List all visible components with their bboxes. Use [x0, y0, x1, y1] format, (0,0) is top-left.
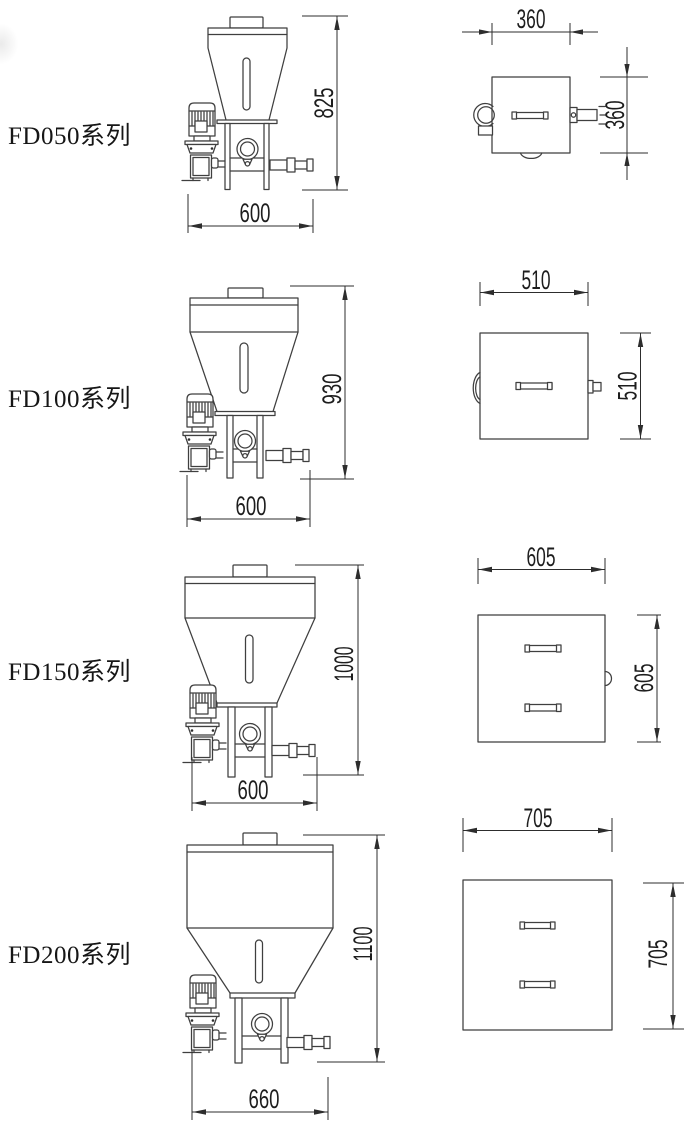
- technical-drawings: 825 600: [0, 0, 700, 1131]
- lid-slot-lower: [520, 981, 555, 988]
- drive-motor: [182, 103, 225, 181]
- discharge-tube: [270, 158, 313, 172]
- width-dimension-600: 600: [192, 757, 317, 811]
- width-value: 600: [236, 491, 267, 521]
- width-value: 600: [240, 198, 271, 228]
- height-dimension-1100: 1100: [303, 835, 385, 1062]
- lid-slot-lower: [525, 704, 561, 712]
- outlet-port: [252, 1014, 273, 1042]
- fd100-top-view: 510 510: [473, 265, 651, 439]
- right-leg: [281, 998, 288, 1063]
- fd050-front-view: 825 600: [182, 16, 348, 233]
- outlet-port: [240, 724, 261, 752]
- left-leg: [228, 707, 235, 777]
- width-dimension-600: 600: [187, 470, 310, 527]
- left-leg: [225, 124, 230, 190]
- lid-slot-upper: [520, 922, 555, 929]
- height-value: 1000: [329, 647, 359, 682]
- top-depth-dimension-605: 605: [629, 615, 661, 742]
- discharge-tube: [287, 1036, 330, 1050]
- height-value: 930: [317, 374, 347, 405]
- top-width-dimension-705: 705: [463, 803, 612, 852]
- lid-slot: [516, 383, 552, 390]
- top-depth-value: 605: [629, 664, 659, 693]
- drive-motor: [183, 975, 226, 1053]
- hopper-lid: [233, 565, 267, 577]
- fd200-top-view: 705 705: [463, 803, 684, 1030]
- discharge-tube: [272, 744, 315, 758]
- right-leg: [264, 124, 269, 190]
- lid-slot: [512, 112, 548, 119]
- top-width-dimension-510: 510: [480, 265, 588, 306]
- top-width-value: 510: [522, 265, 551, 295]
- fd150-top-view: 605 605: [478, 542, 661, 742]
- hopper-rim: [185, 577, 315, 584]
- hopper-top-outline: [463, 880, 612, 1030]
- top-depth-value: 510: [613, 372, 643, 401]
- sight-glass-slot: [240, 343, 248, 393]
- hopper-lid: [228, 288, 263, 298]
- drive-motor: [183, 685, 226, 763]
- hopper-rim: [187, 845, 333, 852]
- discharge-tube: [266, 449, 309, 463]
- hopper-rim: [190, 298, 298, 305]
- top-width-dimension-360: 360: [462, 4, 598, 45]
- top-width-value: 605: [527, 542, 556, 572]
- sight-glass-slot: [243, 58, 250, 110]
- height-dimension-1000: 1000: [295, 565, 364, 775]
- width-value: 600: [238, 775, 269, 805]
- sight-glass-slot: [256, 940, 263, 983]
- fd050-top-view: 360 360: [462, 4, 648, 180]
- width-value: 660: [249, 1084, 280, 1114]
- side-bump: [605, 672, 612, 686]
- right-leg: [257, 416, 263, 479]
- top-depth-dimension-705: 705: [643, 883, 684, 1029]
- outlet-port: [235, 431, 256, 459]
- hopper-rim: [208, 28, 287, 35]
- outlet-port: [237, 139, 258, 167]
- width-dimension-660: 660: [192, 1050, 328, 1120]
- hopper-lid: [230, 17, 263, 28]
- throat-flange: [215, 412, 275, 416]
- height-value: 825: [309, 88, 339, 119]
- height-value: 1100: [348, 927, 378, 962]
- fd100-front-view: 930 600: [180, 286, 354, 527]
- right-leg: [265, 707, 272, 777]
- top-depth-value: 705: [643, 940, 673, 969]
- left-leg: [227, 416, 233, 479]
- height-dimension-930: 930: [290, 286, 354, 479]
- hopper-top-outline: [478, 615, 605, 742]
- feeder-dimension-sheet: FD050系列 FD100系列 FD150系列 FD200系列: [0, 0, 700, 1131]
- fd150-front-view: 1000 600: [183, 565, 364, 811]
- sight-glass-slot: [246, 635, 254, 683]
- lid-slot-upper: [525, 645, 561, 652]
- side-pipe: [588, 381, 601, 394]
- top-width-value: 705: [524, 803, 553, 833]
- fd200-front-view: 1100 660: [183, 833, 385, 1120]
- top-width-value: 360: [517, 4, 546, 34]
- hopper-lid: [243, 833, 277, 845]
- top-depth-dimension-360: 360: [600, 47, 648, 180]
- top-depth-value: 360: [600, 101, 630, 130]
- bottom-bump: [521, 153, 542, 158]
- top-width-dimension-605: 605: [478, 542, 605, 584]
- drive-motor: [180, 394, 223, 472]
- top-depth-dimension-510: 510: [613, 333, 652, 439]
- width-dimension-600: 600: [188, 194, 313, 233]
- throat-flange: [230, 993, 295, 998]
- left-leg: [235, 998, 242, 1063]
